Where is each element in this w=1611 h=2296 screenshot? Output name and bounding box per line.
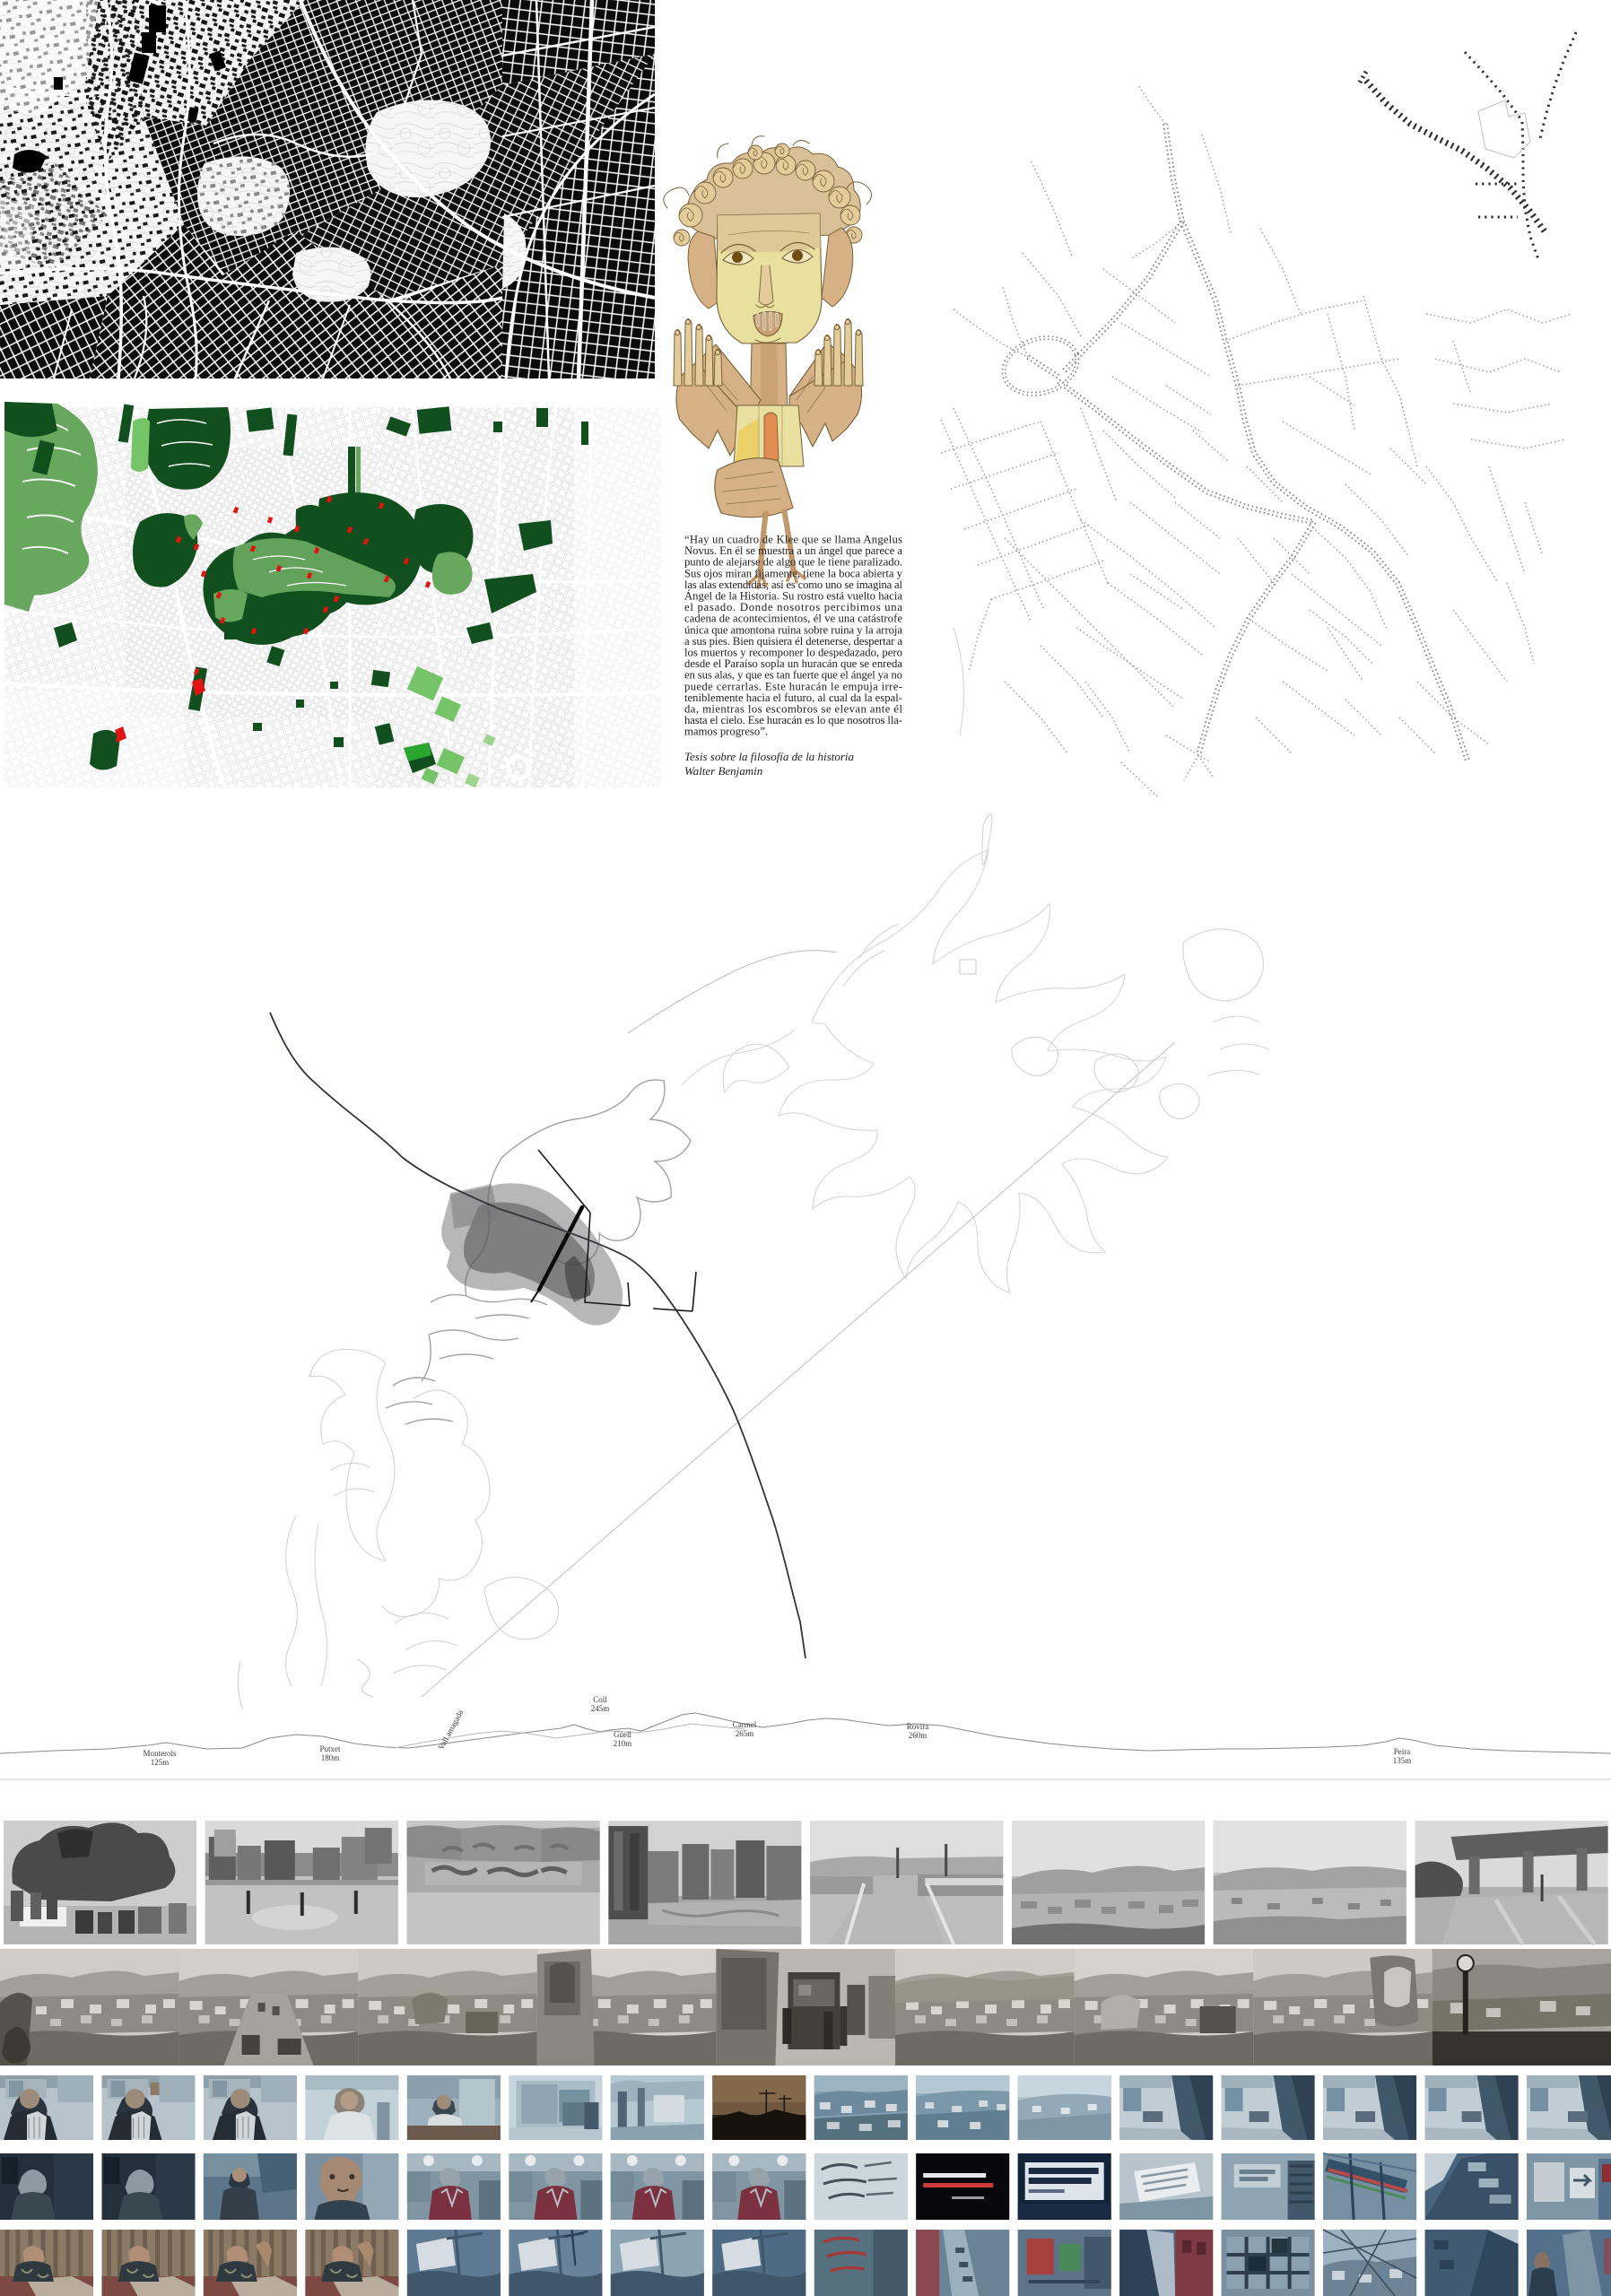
svg-text:245m: 245m [591, 1704, 610, 1713]
svg-text:Putxet: Putxet [319, 1744, 341, 1753]
svg-text:180m: 180m [321, 1753, 340, 1762]
svg-text:Walter Benjamin: Walter Benjamin [684, 764, 762, 778]
svg-text:260m: 260m [909, 1731, 927, 1740]
svg-text:Güell: Güell [614, 1730, 631, 1739]
svg-text:210m: 210m [614, 1739, 632, 1748]
svg-text:Carmel: Carmel [733, 1720, 757, 1729]
svg-text:Coll: Coll [593, 1695, 607, 1704]
svg-text:Vall amagada: Vall amagada [436, 1709, 465, 1752]
svg-text:Monterols: Monterols [144, 1749, 177, 1758]
svg-text:mamos progreso”.: mamos progreso”. [684, 726, 768, 738]
svg-text:Peira: Peira [1394, 1747, 1411, 1756]
svg-text:125m: 125m [151, 1758, 170, 1767]
svg-text:135m: 135m [1393, 1756, 1412, 1765]
svg-text:Rovira: Rovira [907, 1722, 929, 1731]
svg-text:Tesis sobre la filosofía de la: Tesis sobre la filosofía de la historia [684, 750, 855, 763]
svg-text:265m: 265m [736, 1729, 754, 1738]
